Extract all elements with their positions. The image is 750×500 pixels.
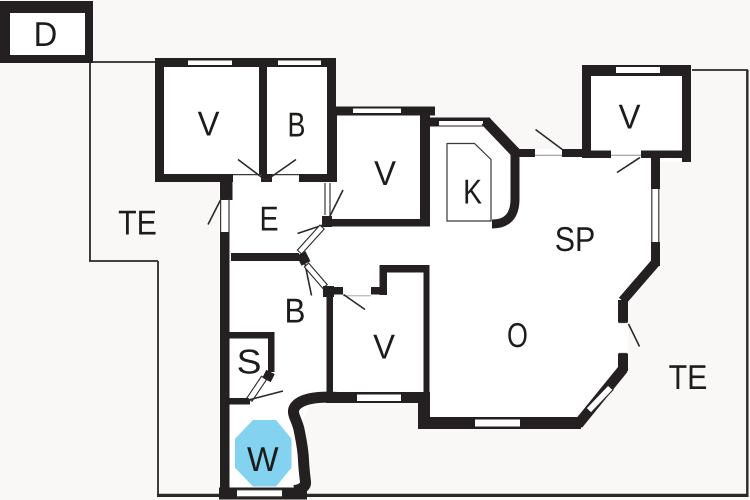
svg-text:V: V — [374, 155, 396, 193]
svg-text:B: B — [285, 293, 306, 331]
svg-text:TE: TE — [669, 359, 708, 397]
svg-text:D: D — [34, 16, 58, 54]
svg-text:O: O — [507, 317, 528, 355]
svg-text:SP: SP — [555, 221, 596, 259]
svg-text:V: V — [373, 329, 395, 367]
svg-text:TE: TE — [118, 205, 157, 243]
svg-text:S: S — [237, 344, 262, 382]
svg-text:E: E — [259, 201, 278, 239]
svg-text:K: K — [463, 174, 482, 212]
svg-text:B: B — [288, 107, 306, 145]
svg-text:W: W — [247, 441, 279, 479]
svg-text:V: V — [198, 106, 220, 144]
svg-text:V: V — [619, 99, 641, 137]
